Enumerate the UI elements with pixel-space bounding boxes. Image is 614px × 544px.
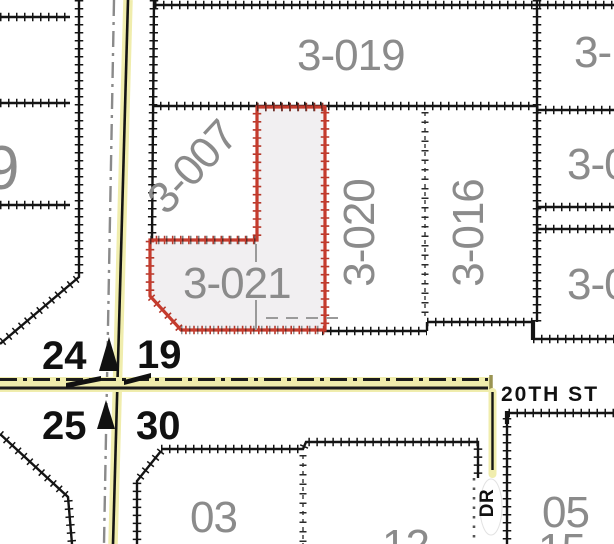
parcel-label-3-021: 3-021 — [183, 259, 291, 308]
parcel-label-3-007: 3-007 — [138, 111, 247, 223]
section-number-nw: 24 — [42, 334, 87, 378]
section-number-ne: 19 — [137, 333, 182, 377]
street-label-20th-st: 20TH ST — [501, 383, 599, 406]
parcel-label-12-partial: 12 — [382, 521, 429, 544]
south-parcels-boundaries — [0, 411, 614, 544]
parcel-map-canvas[interactable]: 3-019 3-007 3-020 3-016 3-021 3- 3-0 3-0… — [0, 0, 614, 544]
section-number-sw: 25 — [42, 404, 87, 448]
parcel-label-3-016: 3-016 — [444, 179, 493, 287]
parcel-label-15-partial: 15 — [538, 525, 585, 544]
parcel-label-right-top-partial: 3- — [574, 28, 611, 77]
parcel-map-viewport[interactable]: 3-019 3-007 3-020 3-016 3-021 3- 3-0 3-0… — [0, 0, 614, 544]
parcel-label-03: 03 — [190, 493, 237, 542]
parcel-label-left-partial: 9 — [0, 134, 19, 203]
parcel-label-3-020: 3-020 — [335, 179, 384, 287]
parcel-label-right-bottom-partial: 3-0 — [567, 260, 614, 309]
road-centerline — [113, 0, 128, 544]
section-number-se: 30 — [136, 404, 181, 448]
parcel-label-right-mid-partial: 3-0 — [567, 140, 614, 189]
street-label-dr: DR — [477, 489, 498, 517]
parcel-label-3-019: 3-019 — [297, 31, 405, 80]
vertical-road — [104, 0, 128, 544]
